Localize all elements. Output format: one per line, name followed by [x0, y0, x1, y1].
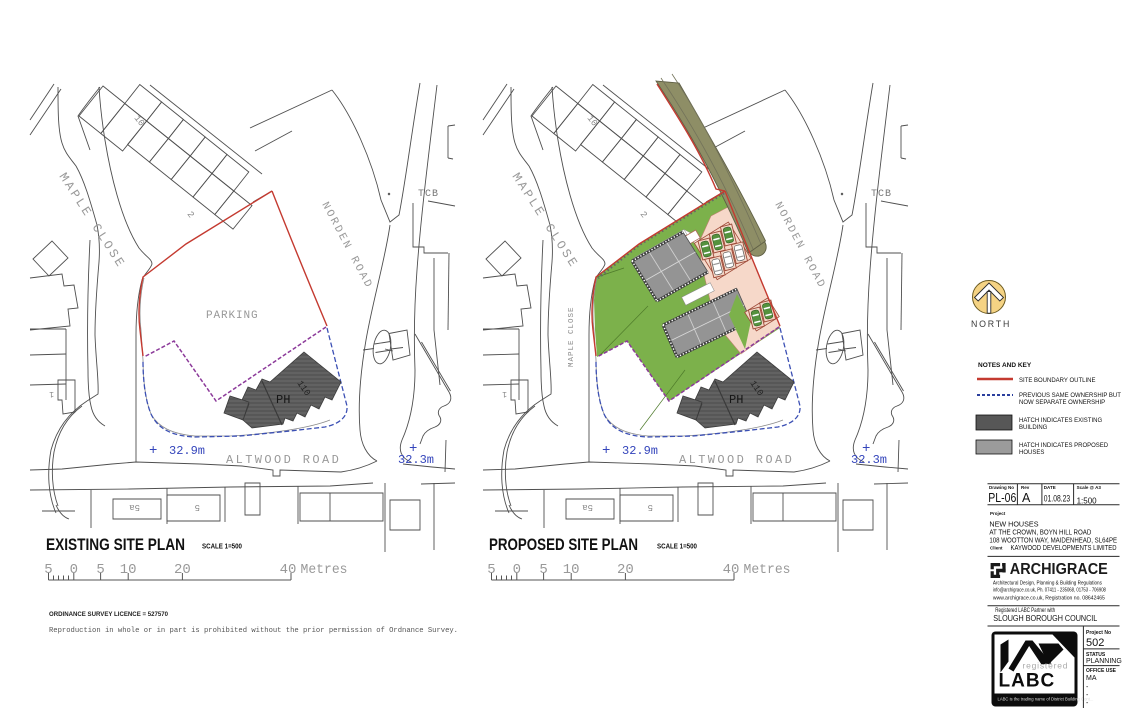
svg-text:EXISTING SITE PLAN: EXISTING SITE PLAN — [46, 536, 185, 554]
svg-text:Client: Client — [990, 546, 1003, 551]
svg-text:info@archigrace.co.uk, Ph. 07: info@archigrace.co.uk, Ph. 07411 - 23506… — [993, 587, 1106, 593]
svg-text:01.08.23: 01.08.23 — [1044, 494, 1070, 505]
svg-text:NOW SEPARATE OWNERSHIP: NOW SEPARATE OWNERSHIP — [1019, 400, 1105, 406]
svg-text:PL-06: PL-06 — [988, 491, 1016, 505]
svg-text:PROPOSED SITE PLAN: PROPOSED SITE PLAN — [489, 536, 638, 554]
svg-text:SCALE 1=500: SCALE 1=500 — [202, 544, 242, 551]
svg-text:LABC: LABC — [999, 671, 1056, 692]
svg-text:SCALE 1=500: SCALE 1=500 — [657, 544, 697, 551]
svg-text:Reproduction in whole or in pa: Reproduction in whole or in part is proh… — [49, 627, 458, 635]
svg-text:www.archigrace.co.uk, R: www.archigrace.co.uk, Registration no. 0… — [992, 596, 1105, 602]
svg-text:Project: Project — [990, 511, 1006, 516]
svg-text:Project No: Project No — [1086, 630, 1111, 636]
svg-text:ORDINANCE SURVEY LICENCE = 527: ORDINANCE SURVEY LICENCE = 527570 — [49, 611, 168, 618]
svg-text:SITE BOUNDARY OUTLINE: SITE BOUNDARY OUTLINE — [1019, 378, 1095, 384]
svg-text:NOTES AND KEY: NOTES AND KEY — [978, 362, 1032, 369]
svg-text:SLOUGH BOROUGH COUNCIL: SLOUGH BOROUGH COUNCIL — [993, 614, 1097, 623]
svg-text:Rev: Rev — [1021, 485, 1030, 490]
svg-text:BUILDING: BUILDING — [1019, 425, 1048, 431]
svg-text:PREVIOUS SAME OWNERSHIP BUT: PREVIOUS SAME OWNERSHIP BUT — [1019, 393, 1121, 399]
svg-text:LABC is the trading name of Di: LABC is the trading name of District Bui… — [998, 697, 1094, 702]
svg-text:MAPLE CLOSE: MAPLE CLOSE — [568, 306, 576, 367]
svg-text:HATCH INDICATES EXISTING: HATCH INDICATES EXISTING — [1019, 418, 1102, 424]
svg-text:Scale @ A3: Scale @ A3 — [1077, 485, 1102, 490]
svg-text:Architectural Design, Planning: Architectural Design, Planning & Buildin… — [993, 581, 1102, 587]
svg-text:HATCH INDICATES PROPOSED: HATCH INDICATES PROPOSED — [1019, 443, 1109, 449]
svg-text:A: A — [1022, 491, 1031, 505]
svg-text:NORTH: NORTH — [971, 319, 1011, 329]
svg-text:KAYWOOD DEVELOPMENTS LIMITED: KAYWOOD DEVELOPMENTS LIMITED — [1011, 543, 1117, 552]
svg-text:1:500: 1:500 — [1077, 497, 1098, 506]
svg-text:Registered LABC Partner with: Registered LABC Partner with — [995, 608, 1055, 614]
svg-text:DATE: DATE — [1044, 485, 1056, 490]
svg-text:PLANNING: PLANNING — [1086, 658, 1122, 665]
svg-text:MA: MA — [1086, 675, 1097, 682]
svg-text:502: 502 — [1086, 637, 1104, 649]
svg-text:Drawing No: Drawing No — [989, 485, 1014, 490]
svg-text:HOUSES: HOUSES — [1019, 450, 1044, 456]
svg-text:ARCHIGRACE: ARCHIGRACE — [1010, 561, 1108, 578]
svg-text:OFFICE USE: OFFICE USE — [1086, 668, 1117, 674]
svg-text:registered: registered — [1023, 661, 1069, 671]
svg-text:PARKING: PARKING — [206, 310, 259, 322]
